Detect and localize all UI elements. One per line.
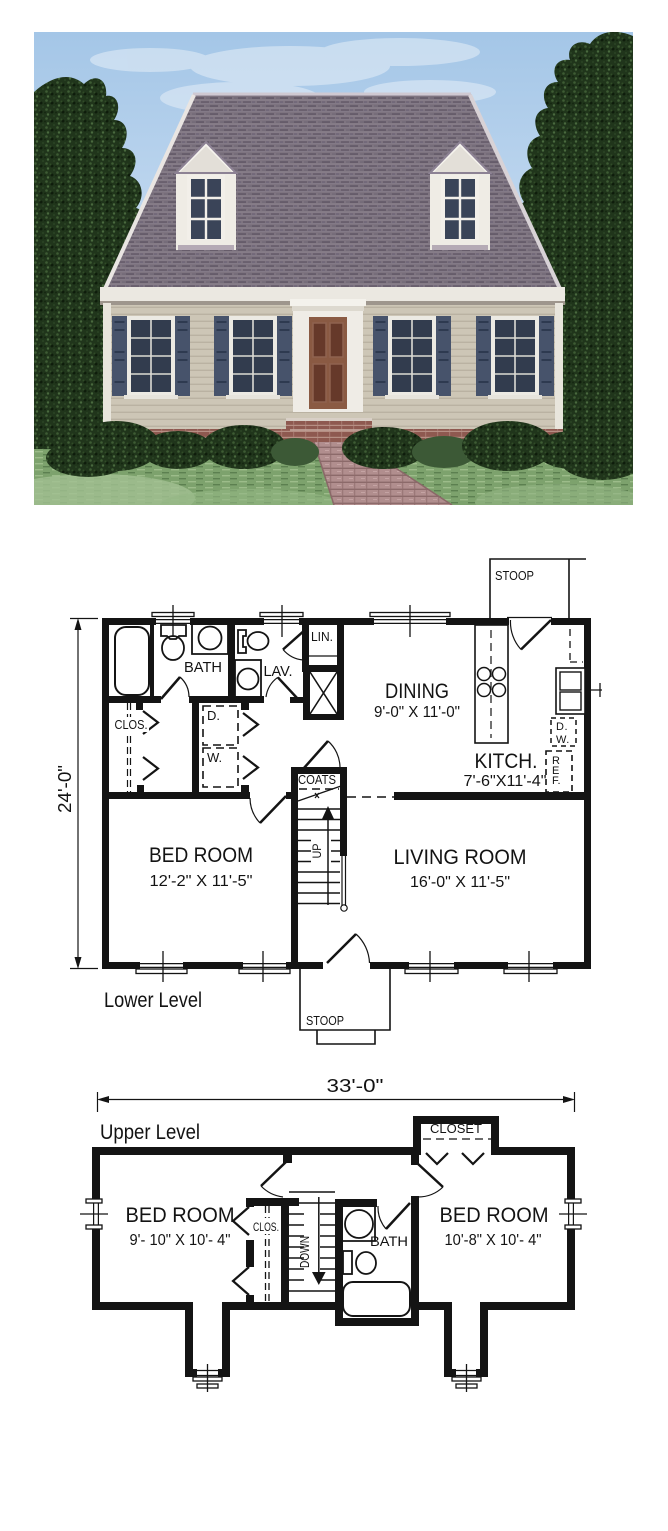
svg-text:7'-6"X11'-4": 7'-6"X11'-4" bbox=[464, 773, 547, 790]
svg-text:W.: W. bbox=[207, 750, 222, 765]
svg-text:CLOS.: CLOS. bbox=[115, 717, 148, 732]
svg-text:LAV.: LAV. bbox=[264, 663, 293, 680]
svg-text:Lower Level: Lower Level bbox=[104, 989, 202, 1012]
svg-text:UP: UP bbox=[310, 844, 324, 859]
svg-text:D.: D. bbox=[207, 708, 220, 723]
svg-text:BATH: BATH bbox=[184, 659, 222, 676]
svg-text:W.: W. bbox=[556, 734, 570, 746]
svg-text:BED ROOM: BED ROOM bbox=[126, 1204, 235, 1227]
svg-text:STOOP: STOOP bbox=[306, 1013, 344, 1028]
svg-text:16'-0" X 11'-5": 16'-0" X 11'-5" bbox=[410, 874, 510, 891]
svg-text:KITCH.: KITCH. bbox=[475, 750, 538, 773]
svg-text:DINING: DINING bbox=[385, 680, 449, 703]
svg-text:CLOSET: CLOSET bbox=[430, 1121, 482, 1136]
svg-text:9'-0" X 11'-0": 9'-0" X 11'-0" bbox=[374, 704, 460, 721]
svg-text:Upper Level: Upper Level bbox=[100, 1121, 200, 1144]
svg-text:D.: D. bbox=[556, 721, 568, 733]
svg-text:BED ROOM: BED ROOM bbox=[149, 844, 253, 867]
svg-text:12'-2" X 11'-5": 12'-2" X 11'-5" bbox=[150, 873, 253, 890]
svg-text:BED ROOM: BED ROOM bbox=[440, 1204, 549, 1227]
svg-text:LIVING ROOM: LIVING ROOM bbox=[394, 846, 527, 869]
svg-text:DOWN: DOWN bbox=[297, 1236, 312, 1268]
svg-text:STOOP: STOOP bbox=[495, 568, 534, 583]
svg-text:LIN.: LIN. bbox=[311, 629, 333, 644]
svg-text:CLOS.: CLOS. bbox=[253, 1220, 279, 1234]
svg-text:BATH: BATH bbox=[370, 1233, 408, 1249]
svg-text:9'- 10" X 10'- 4": 9'- 10" X 10'- 4" bbox=[130, 1232, 231, 1249]
svg-text:10'-8" X 10'- 4": 10'-8" X 10'- 4" bbox=[445, 1232, 542, 1249]
svg-text:24'-0": 24'-0" bbox=[55, 765, 75, 813]
svg-text:COATS: COATS bbox=[298, 772, 336, 787]
svg-text:33'-0": 33'-0" bbox=[327, 1076, 384, 1096]
svg-text:F.: F. bbox=[552, 775, 561, 787]
